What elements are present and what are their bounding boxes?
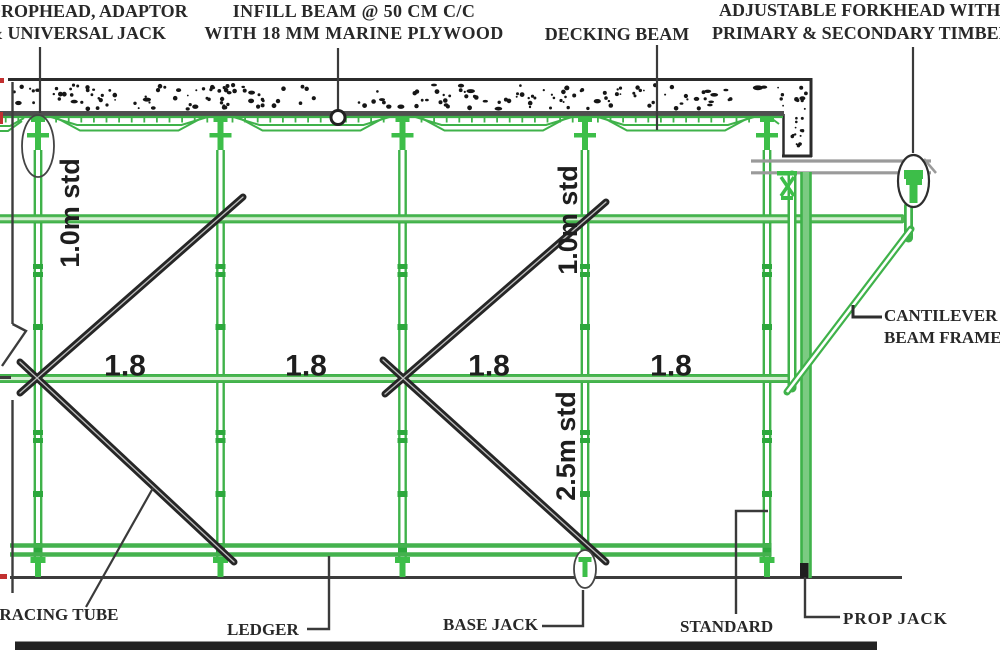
svg-text:PROP JACK: PROP JACK — [843, 609, 948, 628]
svg-text:CANTILEVER: CANTILEVER — [884, 306, 998, 325]
svg-text:1.0m std: 1.0m std — [55, 158, 85, 268]
svg-text:ADJUSTABLE FORKHEAD WITH: ADJUSTABLE FORKHEAD WITH — [719, 0, 1000, 20]
svg-text:2.5m std: 2.5m std — [551, 391, 581, 501]
svg-text:LEDGER: LEDGER — [227, 620, 300, 639]
svg-text:BASE JACK: BASE JACK — [443, 615, 539, 634]
svg-text:STANDARD: STANDARD — [680, 617, 773, 636]
svg-text:INFILL BEAM @ 50 CM C/C: INFILL BEAM @ 50 CM C/C — [233, 1, 475, 21]
svg-text:DECKING BEAM: DECKING BEAM — [545, 24, 690, 44]
svg-text:WITH 18 MM MARINE PLYWOOD: WITH 18 MM MARINE PLYWOOD — [204, 23, 503, 43]
svg-text:1.8: 1.8 — [468, 350, 510, 383]
svg-text:& UNIVERSAL JACK: & UNIVERSAL JACK — [0, 23, 166, 43]
svg-text:BRACING TUBE: BRACING TUBE — [0, 605, 119, 624]
svg-text:BEAM FRAME: BEAM FRAME — [884, 328, 1000, 347]
svg-text:1.8: 1.8 — [285, 350, 327, 383]
svg-text:PRIMARY & SECONDARY TIMBER: PRIMARY & SECONDARY TIMBER — [712, 23, 1000, 43]
svg-text:1.8: 1.8 — [104, 350, 146, 383]
svg-text:1.8: 1.8 — [650, 350, 692, 383]
svg-text:DROPHEAD, ADAPTOR: DROPHEAD, ADAPTOR — [0, 1, 189, 21]
svg-text:1.0m std: 1.0m std — [553, 165, 583, 275]
